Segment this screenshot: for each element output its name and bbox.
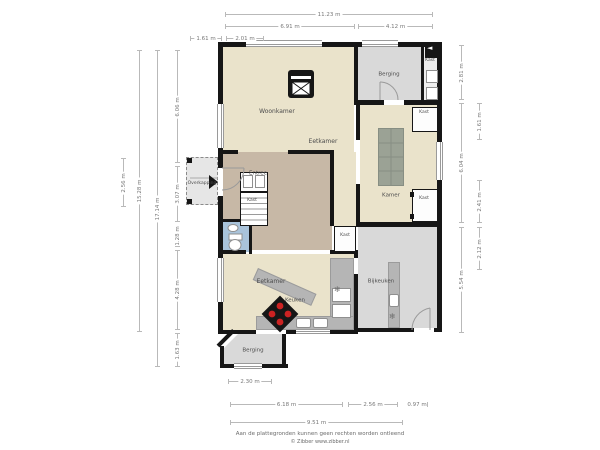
dimension-label: 1.61 m [476, 110, 482, 133]
dimension-label: 6.04 m [458, 151, 464, 174]
dimension-vertical: 2.56 m [123, 158, 124, 207]
dimension-vertical: 2.81 m [461, 45, 462, 100]
dimension-label: 11.23 m [316, 11, 343, 17]
dimension-label: 4.12 m [384, 23, 407, 29]
dimension-label: 2.12 m [476, 237, 482, 260]
dimension-label: 6.91 m [278, 23, 301, 29]
dimension-vertical: 15.28 m [139, 50, 140, 332]
fireplace-icon [288, 70, 314, 98]
dimension-label: 1.63 m [174, 338, 180, 361]
dimension-label: 1.28 m [174, 224, 180, 247]
room-label-kast: Kast [419, 111, 429, 116]
dimension-horizontal: 2.56 m [348, 404, 398, 405]
room-label-woonkamer: Woonkamer [259, 109, 295, 115]
dimension-vertical: 5.54 m [461, 227, 462, 333]
dimension-label: 2.56 m [120, 171, 126, 194]
room-label-bijkeuken: Bijkeuken [368, 279, 395, 285]
dimension-vertical: 1.61 m [479, 103, 480, 140]
dimension-horizontal: 6.18 m [230, 404, 343, 405]
dimension-horizontal: 1.61 m [190, 38, 222, 39]
toilet-fixtures-icon [228, 225, 242, 251]
dimension-label: 2.81 m [458, 61, 464, 84]
dimension-label: 17.14 m [154, 195, 160, 222]
room-label-kast: Kast [247, 199, 257, 204]
room-label-kamer: Kamer [382, 193, 400, 199]
dimension-label: 2.56 m [361, 401, 384, 407]
dimension-label: 9.51 m [305, 419, 328, 425]
dimension-vertical: 4.28 m [177, 250, 178, 330]
room-label-berging: Berging [242, 348, 263, 354]
dimension-horizontal: 11.23 m [225, 14, 433, 15]
dimension-horizontal: 2.30 m [228, 381, 272, 382]
dimension-vertical: 6.04 m [461, 103, 462, 223]
door-swing-arcs [222, 82, 430, 330]
dimension-vertical: 2.41 m [479, 180, 480, 223]
room-label-berging: Berging [378, 72, 399, 78]
room-label-eetkamer: Eetkamer [309, 139, 338, 145]
dimension-label: 15.28 m [136, 178, 142, 205]
dimension-horizontal: 6.91 m [225, 26, 355, 27]
dimension-label: 5.54 m [458, 268, 464, 291]
dimension-vertical: 6.06 m [177, 50, 178, 163]
room-label-kast: Kast [425, 59, 435, 64]
room-label-entree: Entree [249, 171, 267, 177]
dimension-horizontal: 4.12 m [358, 26, 433, 27]
dimension-label: 6.06 m [174, 95, 180, 118]
dimension-vertical: 2.12 m [479, 227, 480, 270]
table-grid [378, 128, 404, 186]
dimension-label: 2.41 m [476, 190, 482, 213]
dimension-label: 2.30 m [238, 378, 261, 384]
dimension-horizontal: 2.01 m [226, 38, 264, 39]
dimension-label: 4.28 m [174, 278, 180, 301]
room-label-keuken: Keuken [285, 298, 305, 304]
dimension-vertical: 1.63 m [177, 333, 178, 367]
dimension-label: 0.97 m [405, 401, 428, 407]
dimension-vertical: 3.07 m [177, 166, 178, 222]
dimension-label: 3.07 m [174, 182, 180, 205]
dimension-horizontal: 9.51 m [230, 422, 403, 423]
room-label-overkapping: Overkapping [188, 182, 217, 187]
dimension-label: 6.18 m [275, 401, 298, 407]
room-label-kast: Kast [419, 197, 429, 202]
dimension-horizontal: 0.97 m [406, 404, 428, 405]
room-label-eetkamer: Eetkamer [257, 279, 286, 285]
dimension-vertical: 1.28 m [177, 225, 178, 247]
floorplan-canvas: Aan de plattegronden kunnen geen rechten… [0, 0, 600, 450]
plan-details-layer [0, 0, 600, 450]
dimension-label: 2.01 m [233, 35, 256, 41]
dimension-vertical: 17.14 m [157, 50, 158, 367]
room-label-kast: Kast [340, 234, 350, 239]
dimension-label: 1.61 m [194, 35, 217, 41]
